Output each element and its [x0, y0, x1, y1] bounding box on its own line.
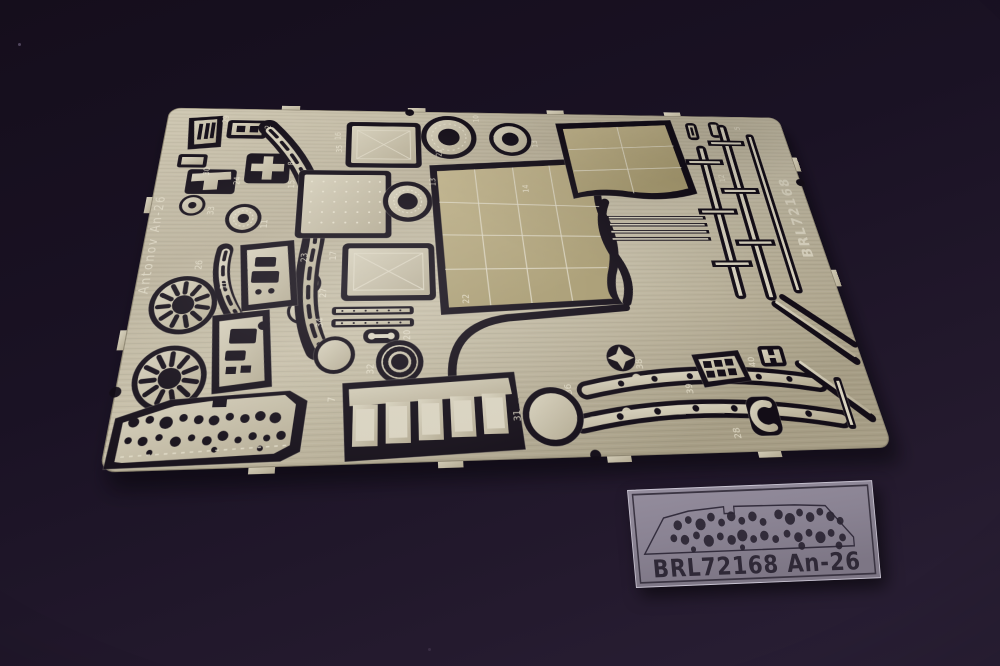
instrument-film: BRL72168 An-26	[627, 480, 881, 588]
dust-speck	[428, 648, 431, 651]
corner-shade	[100, 108, 892, 472]
photo-etch-fret: Antonov An-26 BRL72168 29 2 30 24 8 33 1…	[100, 108, 892, 472]
product-photo: Antonov An-26 BRL72168 29 2 30 24 8 33 1…	[0, 0, 1000, 666]
dust-speck	[18, 43, 21, 46]
